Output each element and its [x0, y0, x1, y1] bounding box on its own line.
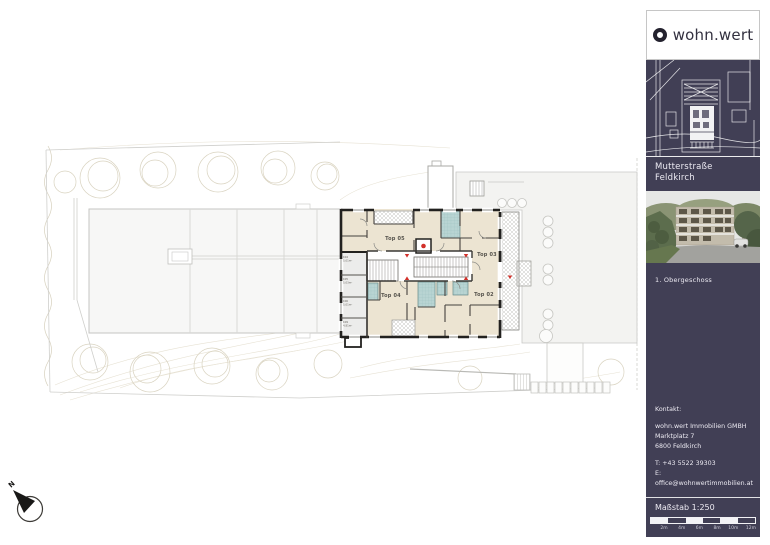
north-arrow-icon: N [7, 480, 43, 522]
contact-email: E: office@wohnwertimmobilien.at [655, 469, 751, 489]
apartment-label-top05: Top 05 [385, 236, 405, 242]
project-street: Mutterstraße [655, 162, 751, 173]
contact-street: Marktplatz 7 [655, 432, 751, 442]
scale-tick: 6m [685, 526, 703, 531]
scale-tick: 12m [738, 526, 756, 531]
storage-id-k05: K05 [343, 277, 348, 281]
wohnwert-logo-icon [653, 28, 667, 42]
location-map [646, 60, 760, 156]
apartment-label-top02: Top 02 [474, 292, 494, 298]
contact-heading: Kontakt: [655, 405, 751, 415]
scale-tick: 2m [650, 526, 668, 531]
project-title: Mutterstraße Feldkirch [646, 157, 760, 191]
garage-roof [89, 204, 342, 338]
contact-block: Kontakt: wohn.wert Immobilien GMBH Markt… [646, 405, 760, 489]
contact-city: 6800 Feldkirch [655, 442, 751, 452]
project-city: Feldkirch [655, 173, 751, 184]
contact-phone: T: +43 5522 39303 [655, 459, 751, 469]
scale-label: Maßstab 1:250 [646, 498, 760, 516]
plan-sheet: Top 05 Top 03 Top 04 Top 02 K04 5,01m² K… [0, 0, 770, 545]
sidebar-body: Mutterstraße Feldkirch [646, 60, 760, 537]
scale-ticks: 2m 4m 6m 8m 10m 12m [650, 526, 756, 537]
apartment-label-top04: Top 04 [381, 293, 401, 299]
scale-tick: 4m [668, 526, 686, 531]
floor-label: 1. Obergeschoss [646, 263, 760, 284]
apartment-label-top03: Top 03 [477, 252, 497, 258]
storage-id-k09: K09 [343, 320, 348, 324]
storage-area-k06: 5,01m² [343, 303, 352, 307]
scale-tick: 8m [703, 526, 721, 531]
brand-name: wohn.wert [673, 26, 754, 44]
storage-id-k06: K06 [343, 299, 348, 303]
brand-header: wohn.wert [646, 10, 760, 60]
scale-tick: 10m [721, 526, 739, 531]
north-label: N [7, 480, 17, 490]
storage-area-k04: 5,01m² [343, 259, 352, 263]
sidebar: wohn.wert [646, 10, 760, 537]
storage-area-k05: 5,03m² [343, 281, 352, 285]
contact-company: wohn.wert Immobilien GMBH [655, 422, 751, 432]
scale-bar [650, 517, 756, 524]
storage-id-k04: K04 [343, 255, 348, 259]
building-floorplan: Top 05 Top 03 Top 04 Top 02 K04 5,01m² K… [339, 208, 531, 347]
storage-area-k09: 4,81m² [343, 324, 352, 328]
building-photo [646, 191, 760, 263]
site-plan: Top 05 Top 03 Top 04 Top 02 K04 5,01m² K… [0, 0, 645, 545]
garden-path [410, 343, 610, 393]
